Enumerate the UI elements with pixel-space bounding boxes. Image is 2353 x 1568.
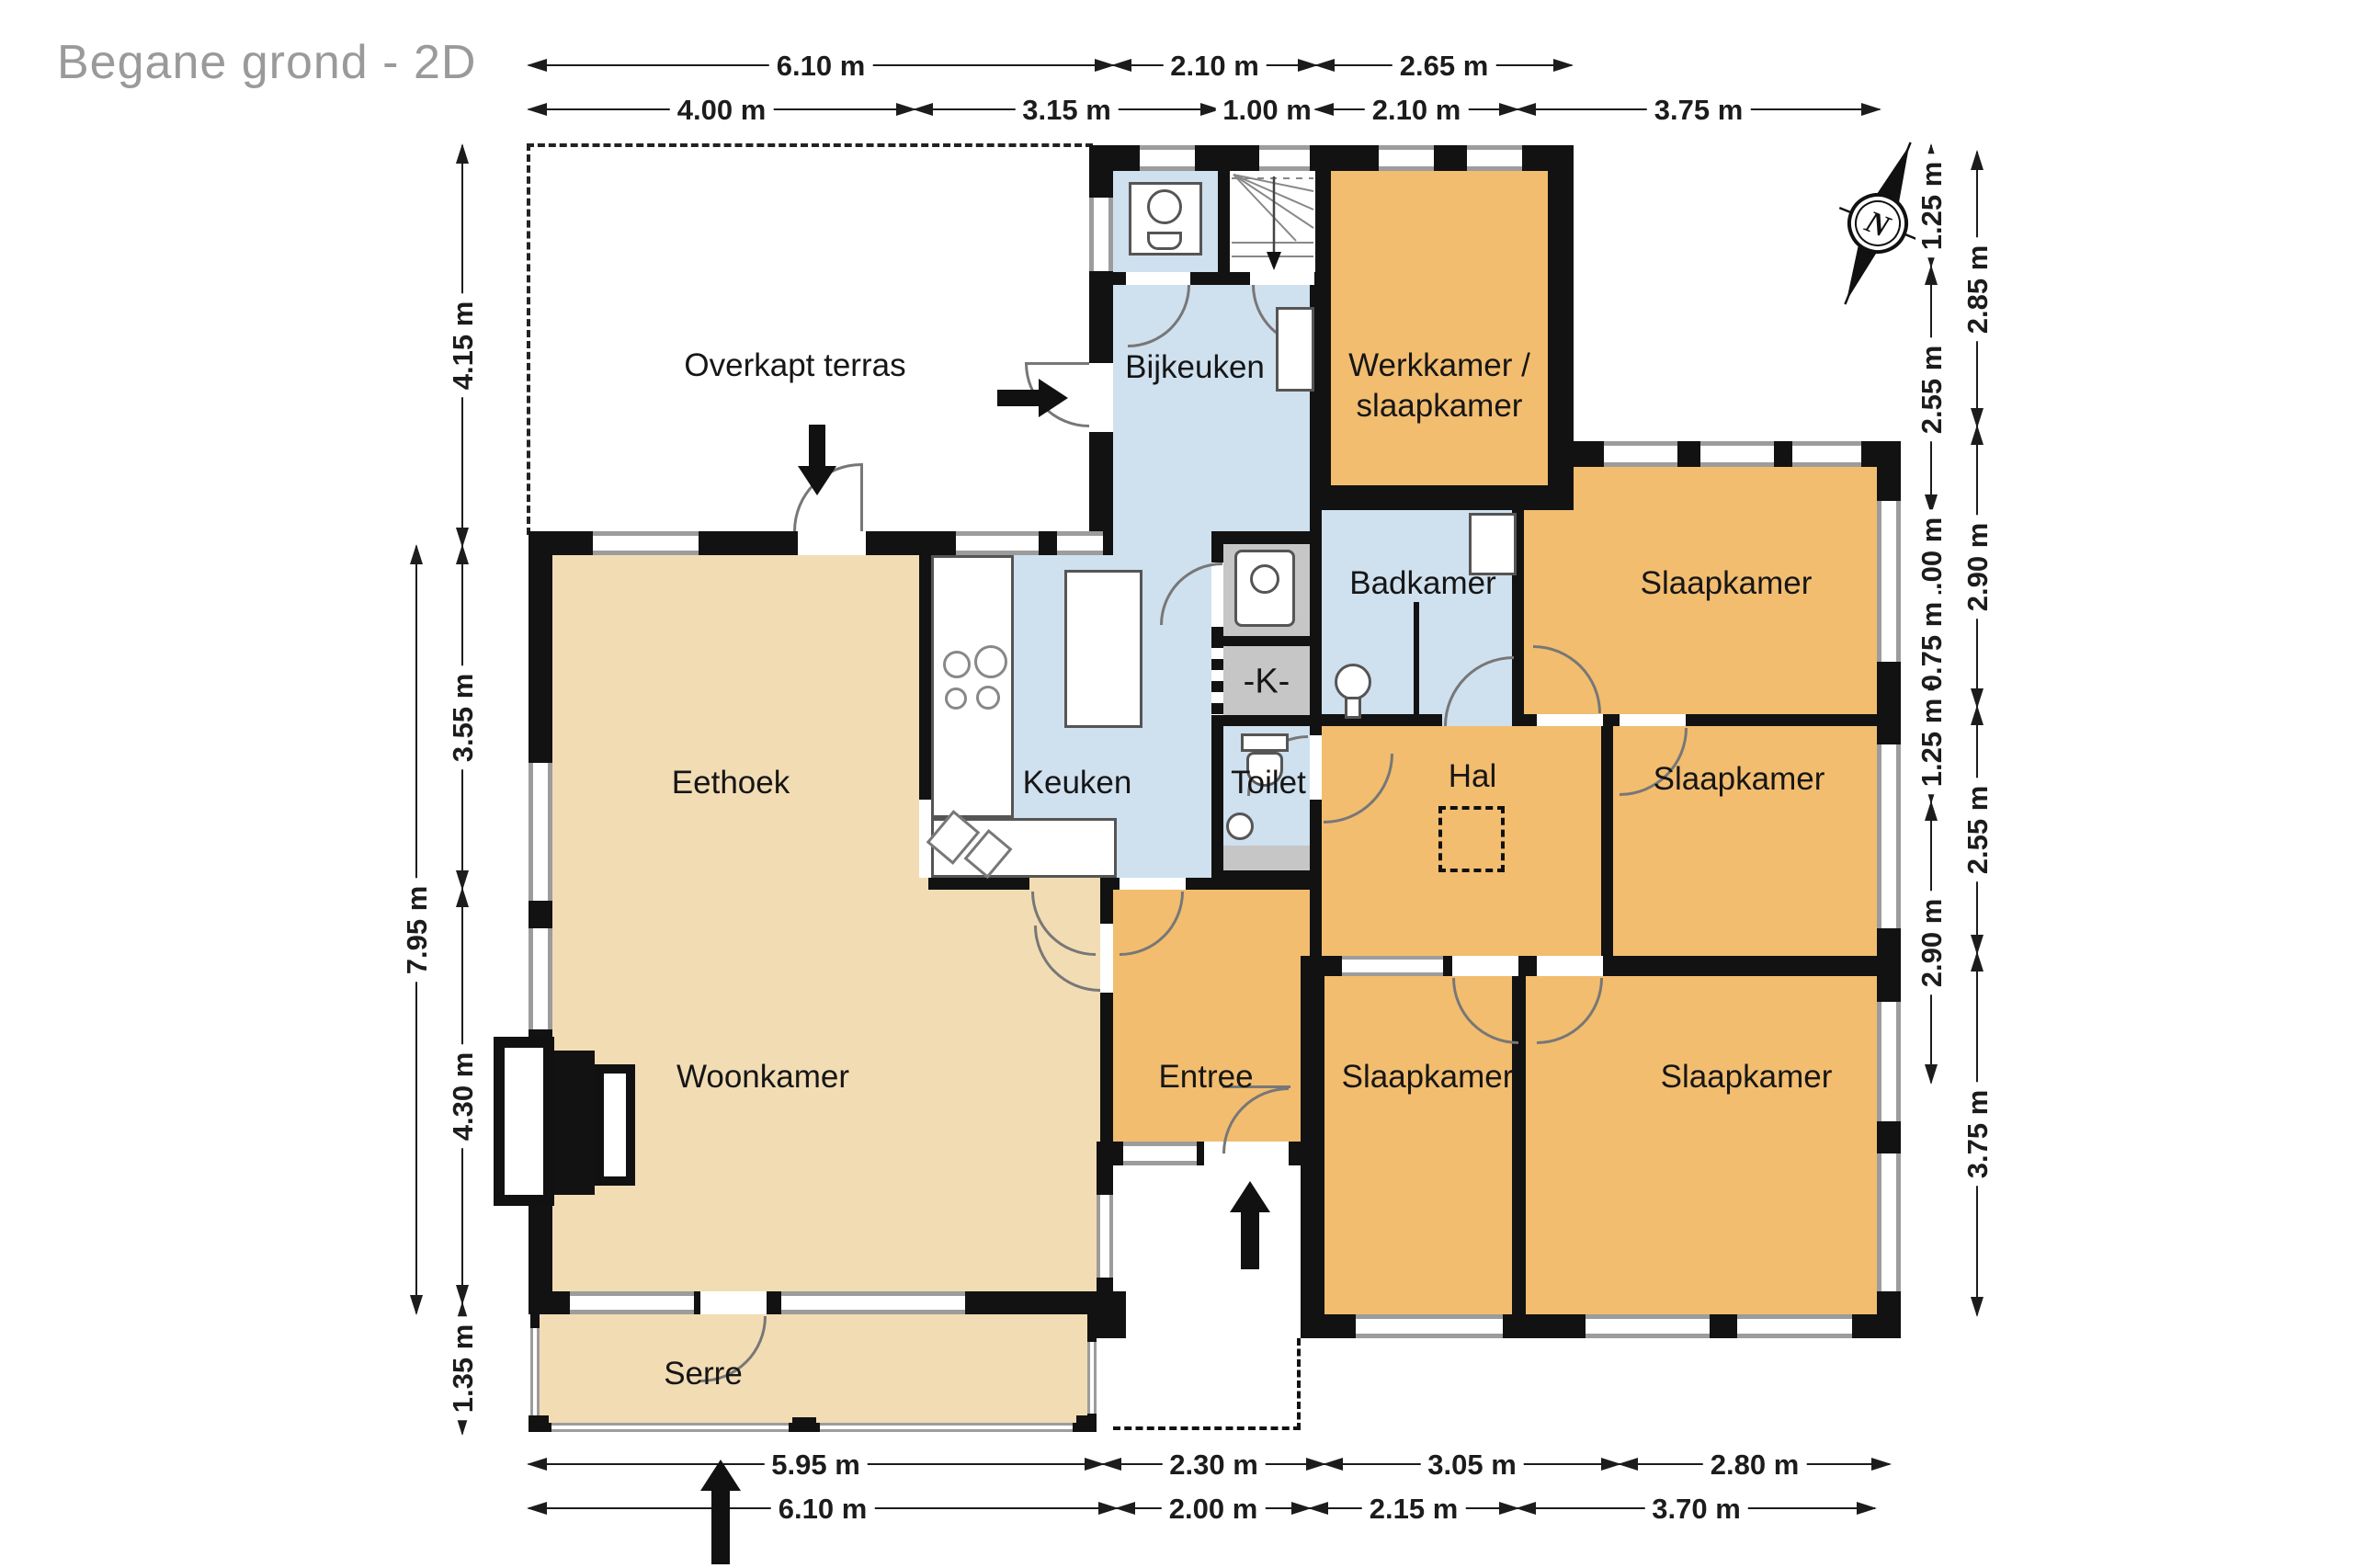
dim-top2-100: 1.00 m bbox=[1219, 108, 1315, 110]
dim-right-290a: 2.90 m bbox=[1930, 802, 1932, 1083]
room-label-toilet: Toilet bbox=[1231, 765, 1306, 801]
door-opening bbox=[1126, 272, 1190, 285]
wall-partition bbox=[1414, 602, 1419, 726]
dim-label: 1.25 m bbox=[1915, 154, 1949, 258]
window bbox=[1379, 145, 1434, 171]
boiler-dial-icon bbox=[1250, 564, 1279, 594]
wall bbox=[1310, 890, 1322, 956]
dim-right-375: 3.75 m bbox=[1976, 953, 1978, 1315]
wall bbox=[1601, 726, 1613, 956]
window bbox=[1259, 145, 1310, 171]
pedestal-sink-foot-icon bbox=[1335, 719, 1371, 726]
dim-top2-400: 4.00 m bbox=[529, 108, 915, 110]
fireplace-outer bbox=[494, 1037, 554, 1206]
dim-label: 2.15 m bbox=[1362, 1493, 1466, 1526]
dim-label: 2.10 m bbox=[1365, 94, 1469, 127]
dim-left-430: 4.30 m bbox=[461, 889, 463, 1303]
window bbox=[1123, 1142, 1197, 1165]
wall bbox=[1076, 1415, 1097, 1432]
dim-label: 6.10 m bbox=[771, 1493, 875, 1526]
dim-label: 4.15 m bbox=[447, 294, 480, 398]
wall bbox=[1518, 956, 1537, 976]
cooktop-burner-icon bbox=[974, 645, 1007, 678]
window bbox=[529, 928, 552, 1029]
room-label-eethoek: Eethoek bbox=[672, 765, 790, 801]
window bbox=[530, 1328, 540, 1415]
room-label-hal: Hal bbox=[1449, 758, 1497, 795]
dim-top2-315: 3.15 m bbox=[915, 108, 1219, 110]
door-leaf bbox=[1025, 362, 1089, 365]
dim-left-795: 7.95 m bbox=[415, 546, 417, 1313]
dim-label: 2.65 m bbox=[1392, 50, 1496, 83]
wall bbox=[919, 555, 931, 800]
kast-dashed-front bbox=[1211, 648, 1223, 715]
dim-label: 3.75 m bbox=[1647, 94, 1751, 127]
serre-entry-arrow-icon bbox=[711, 1491, 730, 1564]
window bbox=[1877, 1153, 1901, 1291]
toilet-tank-icon bbox=[1241, 733, 1289, 752]
room-label-entree: Entree bbox=[1158, 1059, 1253, 1096]
dim-right-255a: 2.55 m bbox=[1930, 267, 1932, 513]
dim-label: 6.10 m bbox=[769, 50, 873, 83]
front-entry-arrow-icon bbox=[1230, 1181, 1270, 1212]
attic-hatch-icon bbox=[1438, 806, 1505, 872]
window bbox=[1792, 441, 1861, 467]
room-label-badkamer: Badkamer bbox=[1349, 565, 1496, 602]
window bbox=[781, 1291, 965, 1314]
wall bbox=[1100, 878, 1120, 890]
window bbox=[1057, 531, 1103, 555]
wall bbox=[529, 1415, 549, 1432]
dim-label: 1.35 m bbox=[447, 1317, 480, 1421]
basin-icon bbox=[1226, 812, 1254, 840]
wall bbox=[1310, 555, 1322, 735]
entry-arrow-icon bbox=[997, 390, 1039, 406]
dim-label: 2.85 m bbox=[1961, 237, 1995, 341]
window bbox=[1700, 441, 1774, 467]
kitchen-island bbox=[1064, 570, 1142, 728]
window bbox=[1604, 441, 1677, 467]
wall bbox=[1186, 878, 1322, 890]
window bbox=[1737, 1314, 1852, 1338]
dim-label: 2.80 m bbox=[1703, 1449, 1807, 1482]
dim-top2-210: 2.10 m bbox=[1315, 108, 1518, 110]
room-label-terras: Overkapt terras bbox=[684, 347, 905, 384]
dim-right-290b: 2.90 m bbox=[1976, 426, 1978, 707]
pedestal-sink-base-icon bbox=[1345, 697, 1361, 719]
wall bbox=[792, 1417, 816, 1432]
room-label-slaapkamer-bm: Slaapkamer bbox=[1342, 1059, 1514, 1096]
wall bbox=[1686, 714, 1877, 726]
window bbox=[1467, 145, 1522, 171]
dim-label: 3.70 m bbox=[1644, 1493, 1748, 1526]
dim-label: 3.15 m bbox=[1015, 94, 1119, 127]
wall bbox=[1603, 956, 1877, 976]
dim-label: 3.75 m bbox=[1961, 1083, 1995, 1187]
dim-top1-265: 2.65 m bbox=[1316, 64, 1572, 66]
door-leaf bbox=[860, 463, 863, 531]
window bbox=[1877, 744, 1901, 928]
dim-label: 4.30 m bbox=[447, 1044, 480, 1148]
window bbox=[1877, 501, 1901, 662]
dim-label: 2.55 m bbox=[1915, 338, 1949, 442]
dim-label: 2.90 m bbox=[1961, 515, 1995, 619]
wall bbox=[1548, 145, 1574, 510]
room-label-woonkamer: Woonkamer bbox=[676, 1059, 849, 1096]
window bbox=[529, 763, 552, 901]
dim-label: 2.30 m bbox=[1162, 1449, 1266, 1482]
porch-dashed-outline bbox=[1113, 1426, 1301, 1430]
door-opening bbox=[1250, 272, 1314, 285]
dim-bottom1-595: 5.95 m bbox=[529, 1463, 1103, 1465]
kitchen-counter bbox=[931, 555, 1014, 818]
wall bbox=[1087, 1291, 1126, 1338]
room-serre bbox=[540, 1314, 1097, 1423]
dim-label: 3.05 m bbox=[1420, 1449, 1524, 1482]
room-label-slaapkamer-br: Slaapkamer bbox=[1661, 1059, 1833, 1096]
window bbox=[1097, 1195, 1113, 1278]
stairs-icon bbox=[1230, 171, 1315, 272]
cabinet-icon bbox=[1276, 307, 1314, 392]
window bbox=[1342, 956, 1443, 976]
cooktop-burner-icon bbox=[976, 686, 1000, 710]
dim-top2-375: 3.75 m bbox=[1518, 108, 1880, 110]
dim-right-255b: 2.55 m bbox=[1976, 707, 1978, 953]
pedestal-sink-icon bbox=[1335, 664, 1371, 700]
fireplace-chimney bbox=[552, 1051, 595, 1195]
room-label-slaapkamer-tr: Slaapkamer bbox=[1641, 565, 1813, 602]
wall bbox=[1218, 171, 1230, 272]
dim-label: 5.95 m bbox=[764, 1449, 868, 1482]
front-entry-arrow-icon bbox=[1241, 1212, 1259, 1269]
entry-arrow-icon bbox=[1039, 379, 1068, 417]
fireplace-hearth bbox=[595, 1064, 635, 1186]
cooktop-burner-icon bbox=[945, 687, 967, 710]
dim-label: 1.25 m bbox=[1915, 690, 1949, 794]
dim-right-075: 0.75 m bbox=[1930, 609, 1932, 682]
dim-label: 2.55 m bbox=[1961, 778, 1995, 882]
door-opening bbox=[798, 531, 866, 555]
dim-label: 7.95 m bbox=[401, 878, 434, 982]
floorplan: Begane grond - 2D bbox=[0, 0, 2353, 1568]
dim-left-355: 3.55 m bbox=[461, 546, 463, 889]
window bbox=[570, 1291, 694, 1314]
room-werkkamer bbox=[1331, 171, 1548, 485]
dim-bottom1-305: 3.05 m bbox=[1324, 1463, 1620, 1465]
window bbox=[1356, 1314, 1503, 1338]
window bbox=[551, 1423, 789, 1432]
window bbox=[1140, 145, 1195, 171]
room-label-slaapkamer-mr: Slaapkamer bbox=[1654, 761, 1825, 798]
room-label-kast: -K- bbox=[1244, 663, 1290, 702]
dim-bottom2-215: 2.15 m bbox=[1310, 1507, 1518, 1509]
door-opening bbox=[700, 1291, 767, 1314]
terrace-door-arrow-icon bbox=[798, 466, 836, 495]
dim-right-125b: 1.25 m bbox=[1930, 682, 1932, 802]
room-slaapkamer-tr-upper bbox=[1574, 467, 1877, 510]
dim-bottom2-610: 6.10 m bbox=[529, 1507, 1117, 1509]
window bbox=[956, 531, 1039, 555]
dim-label: 2.90 m bbox=[1915, 891, 1949, 994]
room-label-keuken: Keuken bbox=[1023, 765, 1132, 801]
window bbox=[1586, 1314, 1710, 1338]
wall bbox=[1223, 636, 1310, 646]
window bbox=[820, 1423, 1073, 1432]
dim-left-415: 4.15 m bbox=[461, 145, 463, 546]
page-title: Begane grond - 2D bbox=[57, 35, 476, 90]
porch-dashed-outline bbox=[1297, 1338, 1301, 1430]
serre-entry-arrow-icon bbox=[700, 1460, 741, 1491]
dim-right-285: 2.85 m bbox=[1976, 152, 1978, 426]
room-label-werkkamer-1: Werkkamer / bbox=[1348, 347, 1530, 384]
room-meter-nook bbox=[1223, 846, 1310, 870]
cooktop-burner-icon bbox=[943, 651, 971, 678]
room-label-serre: Serre bbox=[664, 1356, 743, 1392]
dim-label: 4.00 m bbox=[670, 94, 774, 127]
dim-bottom2-370: 3.70 m bbox=[1518, 1507, 1875, 1509]
window bbox=[1089, 198, 1113, 271]
dim-bottom1-280: 2.80 m bbox=[1620, 1463, 1890, 1465]
dim-label: 1.00 m bbox=[1215, 94, 1319, 127]
dim-top1-210: 2.10 m bbox=[1113, 64, 1316, 66]
room-label-bijkeuken: Bijkeuken bbox=[1125, 349, 1265, 386]
washer-drum-icon bbox=[1147, 189, 1182, 224]
window bbox=[1877, 1002, 1901, 1121]
wall bbox=[1315, 485, 1574, 510]
dim-label: 3.55 m bbox=[447, 665, 480, 769]
dim-right-125a: 1.25 m bbox=[1930, 145, 1932, 267]
dim-bottom2-200: 2.00 m bbox=[1117, 1507, 1310, 1509]
wall bbox=[1223, 715, 1310, 726]
wall bbox=[928, 878, 1029, 890]
door-opening bbox=[1100, 924, 1113, 993]
dim-label: 2.00 m bbox=[1162, 1493, 1266, 1526]
wall bbox=[1514, 714, 1537, 726]
wall bbox=[1310, 800, 1322, 890]
dim-bottom1-230: 2.30 m bbox=[1103, 1463, 1324, 1465]
dim-label: 2.10 m bbox=[1163, 50, 1267, 83]
washer-tub-icon bbox=[1147, 232, 1182, 250]
terrace-door-arrow-icon bbox=[809, 425, 825, 466]
window bbox=[1087, 1342, 1097, 1414]
wall bbox=[1211, 531, 1322, 544]
dim-left-135: 1.35 m bbox=[461, 1303, 463, 1434]
window bbox=[593, 531, 699, 555]
wall bbox=[1603, 714, 1620, 726]
door-opening bbox=[1089, 363, 1113, 432]
dim-top1-610: 6.10 m bbox=[529, 64, 1113, 66]
room-label-werkkamer-2: slaapkamer bbox=[1357, 388, 1523, 425]
